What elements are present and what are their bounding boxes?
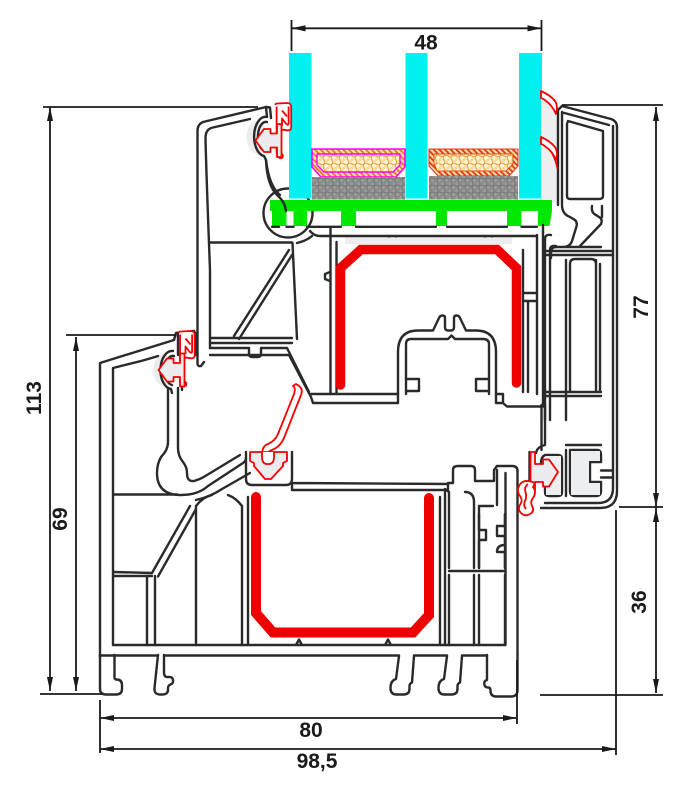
svg-text:77: 77	[630, 295, 653, 318]
svg-text:36: 36	[628, 590, 651, 613]
svg-text:69: 69	[49, 507, 72, 530]
svg-text:98,5: 98,5	[297, 750, 338, 773]
svg-text:80: 80	[299, 719, 322, 742]
svg-text:113: 113	[23, 381, 46, 415]
svg-text:48: 48	[414, 32, 438, 55]
